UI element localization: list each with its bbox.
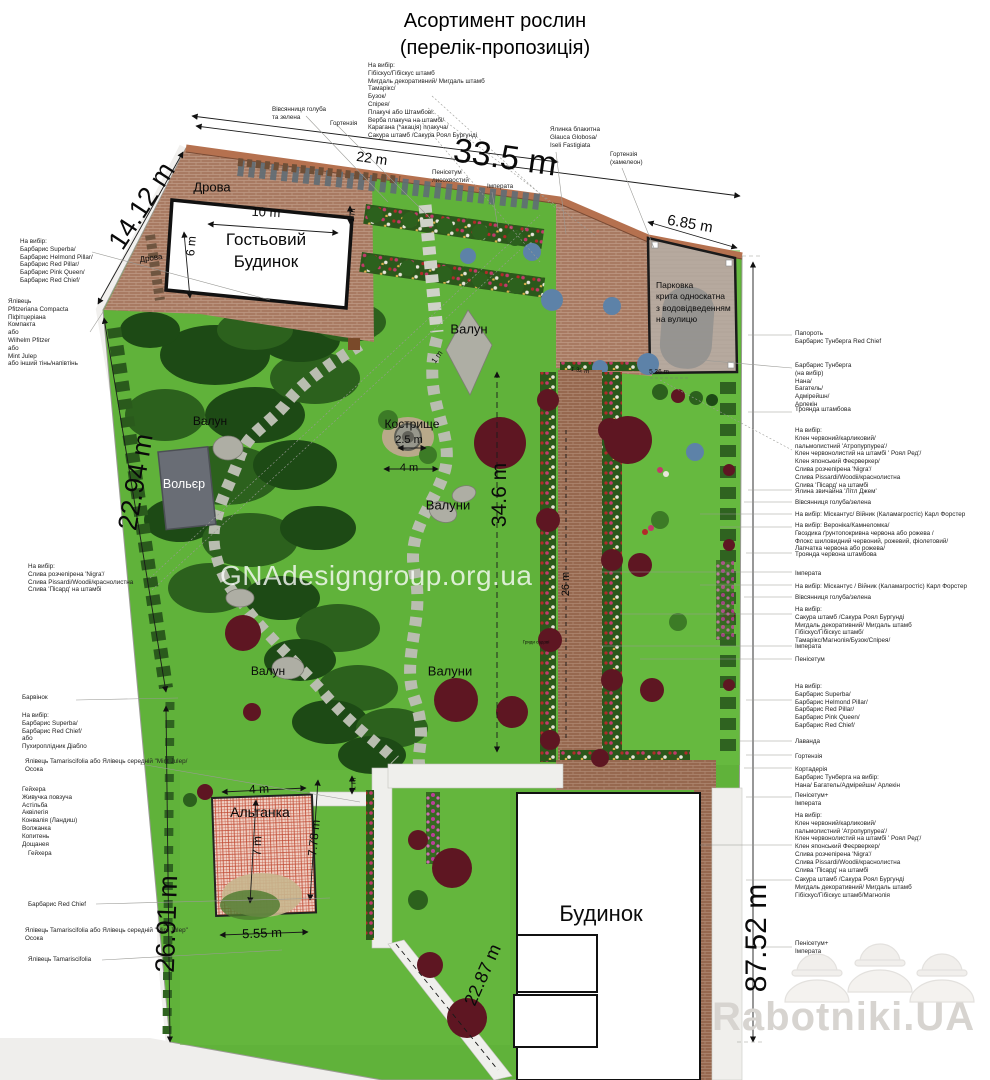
house-structure (514, 793, 700, 1080)
parking (648, 238, 737, 378)
landscape-plan: Асортимент рослин (перелік-пропозиція) Н… (0, 0, 990, 1080)
aviary-structure (158, 447, 216, 530)
gazebo-structure (212, 795, 316, 920)
workers-helmet-icon (785, 944, 974, 1002)
car (658, 285, 716, 370)
plan-graphics (0, 0, 990, 1080)
guest-house-structure (166, 200, 352, 308)
